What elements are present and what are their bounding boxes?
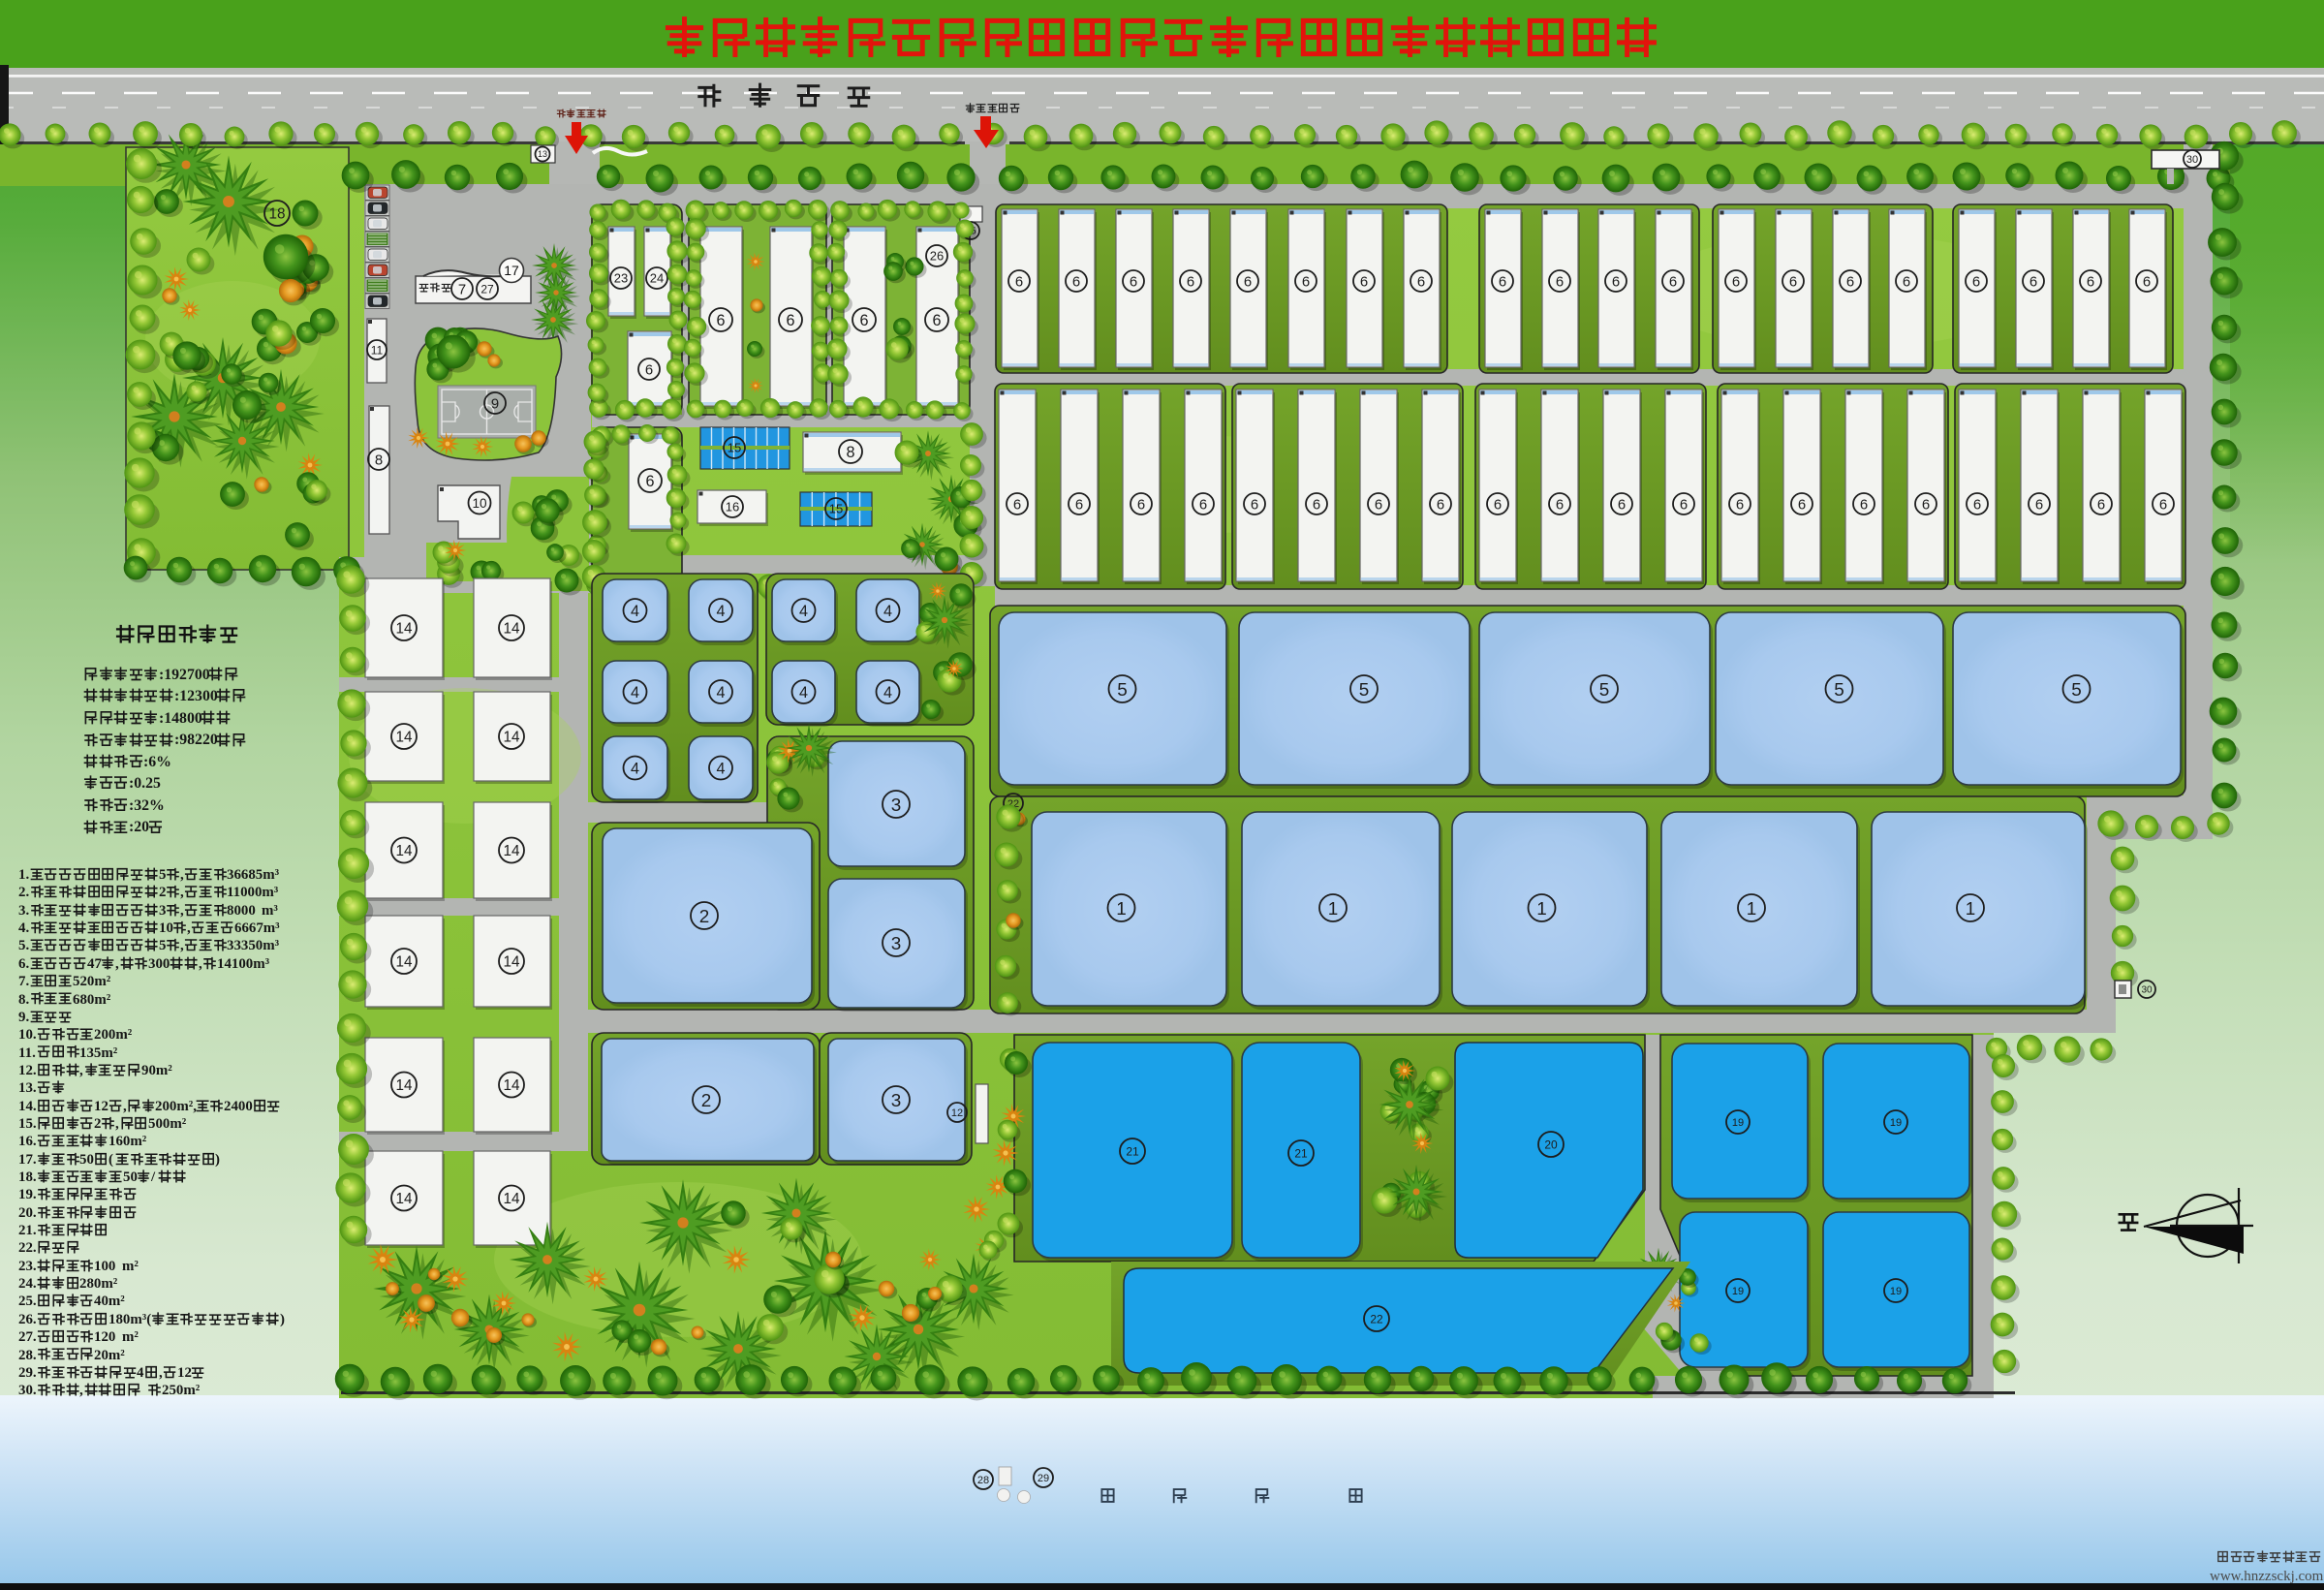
svg-text:26.: 26.	[18, 1312, 37, 1327]
svg-text:5: 5	[1359, 680, 1370, 701]
svg-text:47: 47	[87, 956, 102, 972]
svg-text:,: ,	[115, 956, 119, 972]
svg-text:500m²: 500m²	[148, 1116, 187, 1132]
svg-text::192700: :192700	[159, 667, 210, 683]
svg-text:27.: 27.	[18, 1329, 37, 1345]
svg-text:14: 14	[395, 1077, 413, 1094]
svg-text:17.: 17.	[18, 1152, 37, 1168]
svg-text:13.: 13.	[18, 1080, 37, 1096]
svg-text:,: ,	[79, 1063, 83, 1078]
svg-text:6: 6	[1973, 497, 1981, 513]
svg-text:2: 2	[159, 885, 166, 900]
svg-text:16.: 16.	[18, 1134, 37, 1149]
svg-text:14: 14	[503, 621, 520, 638]
svg-text:12.: 12.	[18, 1063, 37, 1078]
svg-text:6: 6	[1251, 497, 1258, 513]
svg-text:6: 6	[645, 473, 654, 490]
svg-text:1: 1	[1966, 899, 1976, 920]
svg-text:3: 3	[891, 934, 902, 954]
svg-text:6: 6	[1360, 274, 1368, 290]
svg-text:520m²: 520m²	[73, 974, 111, 989]
svg-text:4: 4	[799, 603, 808, 620]
svg-text:20m²: 20m²	[94, 1348, 125, 1363]
svg-text:24.: 24.	[18, 1276, 37, 1292]
svg-text:,: ,	[180, 885, 184, 900]
svg-text:120: 120	[94, 1329, 115, 1345]
svg-text:7.: 7.	[18, 974, 29, 989]
svg-text:/: /	[150, 1169, 156, 1185]
svg-text:5: 5	[2071, 680, 2082, 701]
svg-text:2: 2	[701, 1091, 712, 1111]
svg-text:6: 6	[2035, 497, 2043, 513]
svg-text:19.: 19.	[18, 1187, 37, 1202]
svg-text::6%: :6%	[143, 754, 171, 770]
svg-text:28: 28	[977, 1475, 989, 1486]
svg-text:4: 4	[883, 603, 892, 620]
svg-text:6: 6	[1015, 274, 1023, 290]
svg-text:4.: 4.	[18, 920, 29, 936]
svg-text:24: 24	[650, 271, 664, 286]
svg-text:2.: 2.	[18, 885, 29, 900]
svg-text:15: 15	[829, 502, 843, 516]
svg-text:6: 6	[1013, 497, 1021, 513]
svg-text:6: 6	[1789, 274, 1797, 290]
svg-text:6667m³: 6667m³	[234, 920, 280, 936]
svg-text:6: 6	[2030, 274, 2037, 290]
svg-text:1: 1	[1536, 899, 1547, 920]
svg-text:8.: 8.	[18, 992, 29, 1008]
svg-text:17: 17	[504, 263, 519, 278]
svg-text:21: 21	[1294, 1146, 1308, 1160]
svg-text:6: 6	[1669, 274, 1677, 290]
svg-text:(: (	[108, 1152, 113, 1168]
svg-text:12: 12	[951, 1107, 963, 1119]
svg-text:,: ,	[79, 1383, 83, 1398]
svg-text:16: 16	[726, 500, 739, 514]
svg-text:30: 30	[2141, 985, 2153, 996]
svg-text:200m²,: 200m²,	[155, 1099, 197, 1114]
svg-text:4: 4	[631, 684, 639, 701]
svg-text::20: :20	[129, 819, 149, 835]
svg-text:25.: 25.	[18, 1294, 37, 1309]
svg-text::14800: :14800	[159, 710, 202, 727]
svg-text:,: ,	[187, 920, 191, 936]
svg-text:,: ,	[159, 1365, 163, 1381]
svg-text:): )	[215, 1152, 220, 1168]
svg-text:14: 14	[503, 1077, 520, 1094]
svg-text:9: 9	[491, 396, 499, 412]
svg-text:6: 6	[1618, 497, 1626, 513]
svg-text:29.: 29.	[18, 1365, 37, 1381]
svg-text:3.: 3.	[18, 903, 29, 919]
svg-text:6: 6	[2143, 274, 2151, 290]
svg-text:11000m³: 11000m³	[227, 885, 279, 900]
svg-text:www.hnzzsckj.com: www.hnzzsckj.com	[2210, 1569, 2324, 1584]
svg-text:40m²: 40m²	[94, 1294, 125, 1309]
svg-text:12: 12	[177, 1365, 192, 1381]
svg-text:23: 23	[614, 271, 628, 286]
svg-text:8: 8	[375, 452, 383, 468]
svg-text:90m²: 90m²	[141, 1063, 172, 1078]
svg-text:1: 1	[1328, 899, 1339, 920]
svg-text:14: 14	[503, 730, 520, 746]
svg-text:,: ,	[199, 956, 202, 972]
svg-text:,: ,	[123, 1099, 127, 1114]
svg-text:22: 22	[1370, 1312, 1383, 1325]
svg-text:30.: 30.	[18, 1383, 37, 1398]
svg-text:6: 6	[1199, 497, 1207, 513]
svg-text:6: 6	[786, 312, 794, 329]
svg-text:14: 14	[503, 843, 520, 859]
svg-text:300: 300	[148, 956, 170, 972]
svg-text:29: 29	[1038, 1473, 1049, 1484]
svg-text:3: 3	[891, 795, 902, 816]
svg-text:6: 6	[1499, 274, 1506, 290]
svg-text:6: 6	[645, 362, 653, 378]
svg-text:6: 6	[1922, 497, 1930, 513]
svg-text:6: 6	[1302, 274, 1310, 290]
svg-text:250m²: 250m²	[162, 1383, 201, 1398]
svg-text:26: 26	[930, 249, 944, 264]
svg-text:30: 30	[2186, 154, 2198, 166]
svg-text:6: 6	[1556, 497, 1564, 513]
svg-text:18.: 18.	[18, 1169, 37, 1185]
svg-text:7: 7	[458, 282, 466, 297]
svg-text:2: 2	[94, 1116, 101, 1132]
svg-text:14.: 14.	[18, 1099, 37, 1114]
svg-text:33350m³: 33350m³	[227, 938, 280, 953]
svg-text:3: 3	[891, 1091, 902, 1111]
svg-text:11: 11	[371, 343, 384, 357]
svg-text:14: 14	[395, 954, 413, 971]
svg-text:4: 4	[631, 760, 639, 777]
svg-text:5: 5	[159, 867, 166, 883]
svg-text:6: 6	[2087, 274, 2094, 290]
svg-text:19: 19	[1732, 1117, 1744, 1129]
svg-text:200m²: 200m²	[94, 1027, 133, 1043]
svg-text:6: 6	[1846, 274, 1854, 290]
svg-text:6: 6	[2159, 497, 2167, 513]
svg-text:5: 5	[1834, 680, 1844, 701]
svg-text:2400: 2400	[224, 1099, 253, 1114]
svg-text:180m³(: 180m³(	[108, 1312, 151, 1327]
svg-text:4: 4	[716, 603, 725, 620]
svg-text:): )	[280, 1312, 285, 1327]
svg-text:m³: m³	[262, 903, 278, 919]
svg-text:10: 10	[159, 920, 173, 936]
svg-text:6: 6	[859, 312, 868, 329]
svg-text:m²: m²	[122, 1329, 139, 1345]
svg-text:6: 6	[1375, 497, 1382, 513]
svg-text:6: 6	[1130, 274, 1137, 290]
svg-text:6: 6	[1556, 274, 1564, 290]
svg-text:6.: 6.	[18, 956, 29, 972]
svg-text:23.: 23.	[18, 1259, 37, 1274]
svg-text:2: 2	[699, 907, 710, 927]
svg-text:m²: m²	[122, 1259, 139, 1274]
svg-text:6: 6	[1313, 497, 1320, 513]
svg-text:12: 12	[94, 1099, 108, 1114]
svg-text:4: 4	[799, 684, 808, 701]
svg-text:4: 4	[716, 684, 725, 701]
svg-text:,: ,	[180, 867, 184, 883]
svg-text:3: 3	[159, 903, 166, 919]
svg-text:6: 6	[1494, 497, 1502, 513]
svg-text:18: 18	[268, 206, 285, 223]
svg-text:22.: 22.	[18, 1240, 37, 1256]
svg-text:14: 14	[395, 1191, 413, 1207]
svg-text:6: 6	[1972, 274, 1980, 290]
svg-text:6: 6	[1244, 274, 1252, 290]
svg-text:6: 6	[1417, 274, 1425, 290]
svg-text:4: 4	[883, 684, 892, 701]
svg-text::0.25: :0.25	[129, 775, 161, 792]
svg-text:15: 15	[728, 441, 741, 455]
svg-text:6: 6	[1187, 274, 1194, 290]
svg-text:5.: 5.	[18, 938, 29, 953]
svg-text:1: 1	[1116, 899, 1127, 920]
svg-text:19: 19	[1890, 1117, 1902, 1129]
svg-text:8: 8	[846, 444, 854, 461]
svg-text:15.: 15.	[18, 1116, 37, 1132]
svg-text:6: 6	[1732, 274, 1740, 290]
svg-text:6: 6	[1137, 497, 1145, 513]
svg-text:680m²: 680m²	[73, 992, 111, 1008]
svg-text:14: 14	[395, 843, 413, 859]
svg-text:100: 100	[94, 1259, 115, 1274]
svg-text:4: 4	[631, 603, 639, 620]
svg-text:20.: 20.	[18, 1205, 37, 1221]
svg-text:8000: 8000	[227, 903, 256, 919]
svg-text:14: 14	[395, 730, 413, 746]
svg-text:6: 6	[1798, 497, 1806, 513]
svg-text:5: 5	[1599, 680, 1610, 701]
svg-text:14: 14	[503, 954, 520, 971]
svg-text:5: 5	[1117, 680, 1128, 701]
svg-text:11.: 11.	[18, 1045, 36, 1061]
svg-text:280m²: 280m²	[79, 1276, 118, 1292]
svg-text:19: 19	[1732, 1286, 1744, 1297]
svg-text:50: 50	[123, 1169, 138, 1185]
svg-text:6: 6	[932, 312, 941, 329]
svg-text:1.: 1.	[18, 867, 29, 883]
svg-text:36685m³: 36685m³	[227, 867, 280, 883]
svg-text::12300: :12300	[174, 688, 218, 704]
svg-text:9.: 9.	[18, 1010, 29, 1025]
svg-text:20: 20	[1544, 1138, 1558, 1151]
svg-text:21: 21	[1126, 1144, 1139, 1158]
svg-text:135m²: 135m²	[79, 1045, 118, 1061]
svg-text::98220: :98220	[174, 732, 218, 748]
svg-text:6: 6	[1075, 497, 1083, 513]
svg-text:27: 27	[480, 282, 494, 296]
svg-text:6: 6	[1437, 497, 1444, 513]
svg-text:10: 10	[472, 496, 487, 511]
svg-text:160m²: 160m²	[108, 1134, 147, 1149]
svg-text:6: 6	[1680, 497, 1688, 513]
svg-text:6: 6	[2097, 497, 2105, 513]
svg-text:6: 6	[1736, 497, 1744, 513]
svg-text:,: ,	[180, 903, 184, 919]
svg-text:19: 19	[1890, 1286, 1902, 1297]
svg-text:6: 6	[1612, 274, 1620, 290]
svg-text:6: 6	[716, 312, 725, 329]
svg-text:10.: 10.	[18, 1027, 37, 1043]
svg-text:5: 5	[159, 938, 166, 953]
svg-text:28.: 28.	[18, 1348, 37, 1363]
svg-text:13: 13	[538, 149, 547, 159]
svg-text:4: 4	[716, 760, 725, 777]
svg-text:1: 1	[1747, 899, 1757, 920]
svg-text:6: 6	[1903, 274, 1910, 290]
svg-text:21.: 21.	[18, 1223, 37, 1238]
svg-text:50: 50	[79, 1152, 94, 1168]
svg-text:4: 4	[137, 1365, 144, 1381]
svg-text:,: ,	[180, 938, 184, 953]
svg-text:14: 14	[395, 621, 413, 638]
svg-text:6: 6	[1860, 497, 1868, 513]
svg-text::32%: :32%	[129, 797, 165, 814]
svg-text:14: 14	[503, 1191, 520, 1207]
svg-text:,: ,	[115, 1116, 119, 1132]
svg-text:14100m³: 14100m³	[217, 956, 270, 972]
svg-text:6: 6	[1072, 274, 1080, 290]
